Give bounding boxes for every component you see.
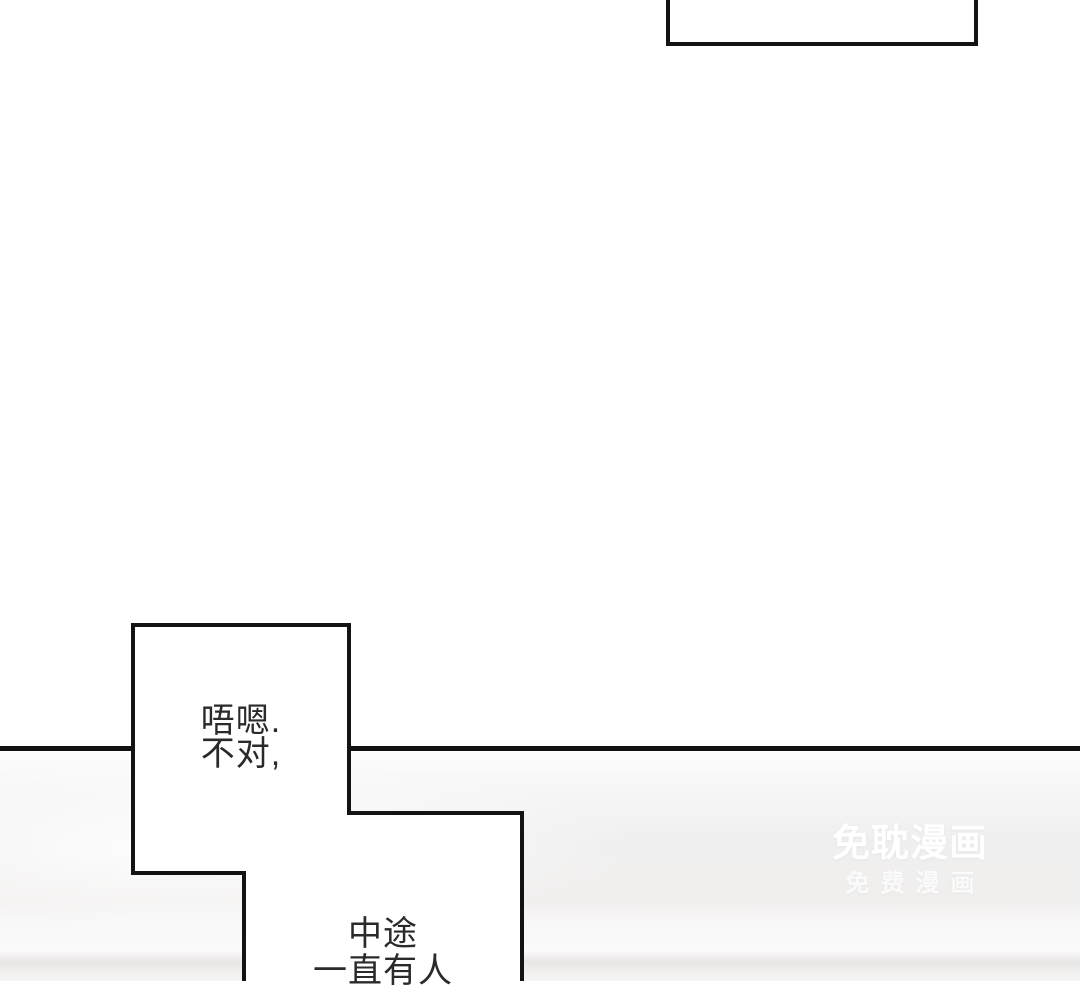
speech-line: 中途	[244, 916, 522, 953]
speech-bubble-main-text: 唔嗯. 不对,	[133, 705, 349, 771]
comic-page: 唔嗯. 不对, 中途 一直有人 免耽漫画 免费漫画	[0, 0, 1080, 981]
speech-line: 不对,	[133, 738, 349, 771]
speech-line: 唔嗯.	[133, 705, 349, 738]
watermark-title: 免耽漫画	[795, 824, 1025, 864]
speech-bubble-top-cutoff	[666, 0, 978, 46]
watermark-subtitle: 免费漫画	[795, 870, 1025, 898]
speech-bubble-bottom-text: 中途 一直有人	[244, 916, 522, 990]
watermark: 免耽漫画 免费漫画	[795, 824, 1025, 898]
speech-line: 一直有人	[244, 953, 522, 990]
